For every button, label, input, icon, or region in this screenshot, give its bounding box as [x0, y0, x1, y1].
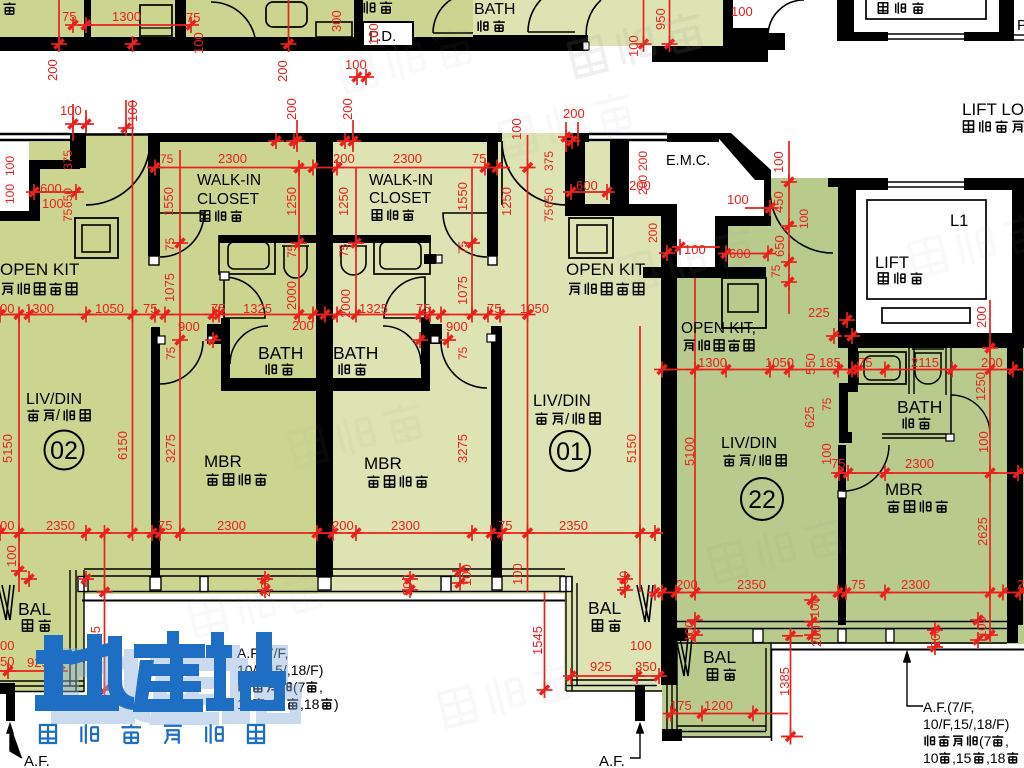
svg-text:200: 200	[292, 318, 314, 333]
svg-text:200: 200	[646, 223, 660, 243]
svg-text:3275: 3275	[163, 434, 178, 463]
svg-text:5100: 5100	[682, 437, 697, 466]
svg-text:75: 75	[164, 346, 178, 360]
svg-text:02: 02	[50, 437, 78, 465]
svg-text:10/F,15/,18/F): 10/F,15/,18/F)	[923, 716, 1009, 732]
svg-text:75: 75	[143, 301, 157, 316]
svg-text:350: 350	[635, 659, 657, 674]
svg-text:75: 75	[285, 244, 299, 258]
svg-text:MBR: MBR	[885, 480, 923, 499]
svg-text:2300: 2300	[218, 151, 247, 166]
svg-text:5150: 5150	[624, 434, 639, 463]
svg-text:1050: 1050	[765, 355, 794, 370]
svg-text:75: 75	[487, 301, 501, 316]
svg-text:75: 75	[211, 301, 225, 316]
svg-text:22: 22	[748, 486, 776, 514]
svg-text:5150: 5150	[0, 434, 15, 463]
svg-text:100: 100	[771, 151, 786, 173]
svg-text:200: 200	[928, 626, 943, 648]
svg-text:100: 100	[510, 563, 525, 585]
svg-text:75: 75	[62, 9, 76, 24]
svg-text:1325: 1325	[359, 301, 388, 316]
svg-text:00: 00	[0, 638, 14, 653]
svg-text:650: 650	[772, 235, 787, 257]
svg-text:75: 75	[456, 346, 470, 360]
svg-text:185: 185	[819, 355, 841, 370]
svg-text:600: 600	[576, 178, 598, 193]
svg-text:650: 650	[61, 188, 75, 208]
svg-text:75: 75	[820, 397, 834, 411]
svg-text:BAL: BAL	[18, 599, 51, 619]
svg-text:,: ,	[319, 679, 323, 695]
svg-text:MBR: MBR	[204, 452, 242, 471]
svg-text:75: 75	[498, 518, 512, 533]
svg-text:100: 100	[191, 32, 206, 54]
svg-text:375: 375	[61, 150, 75, 170]
svg-text:75: 75	[858, 355, 872, 370]
svg-text:2300: 2300	[217, 518, 246, 533]
svg-text:LIV/DIN: LIV/DIN	[26, 391, 82, 408]
svg-text:00: 00	[0, 518, 14, 533]
svg-text:650: 650	[542, 188, 556, 208]
svg-text:BATH: BATH	[258, 343, 303, 363]
svg-text:1300: 1300	[698, 355, 727, 370]
svg-text:1075: 1075	[162, 273, 177, 302]
svg-text:2350: 2350	[737, 577, 766, 592]
svg-text:200: 200	[636, 151, 650, 171]
svg-text:BATH: BATH	[333, 343, 378, 363]
svg-text:OPEN KIT,: OPEN KIT,	[681, 320, 756, 337]
svg-text:00: 00	[0, 301, 14, 316]
svg-text:100: 100	[366, 23, 381, 45]
svg-text:100: 100	[4, 545, 19, 567]
svg-text:2350: 2350	[559, 518, 588, 533]
svg-text:CLOSET: CLOSET	[197, 191, 260, 208]
svg-text:2000: 2000	[338, 289, 353, 318]
svg-text:100: 100	[727, 192, 749, 207]
svg-text:,18: ,18	[986, 750, 1006, 766]
svg-text:1075: 1075	[455, 276, 470, 305]
svg-text:100: 100	[797, 209, 811, 229]
svg-text:L1: L1	[950, 212, 968, 230]
svg-text:1250: 1250	[284, 187, 299, 216]
svg-text:200: 200	[275, 60, 290, 82]
svg-text:1325: 1325	[243, 301, 272, 316]
svg-text:200: 200	[45, 59, 60, 81]
svg-text:2300: 2300	[391, 518, 420, 533]
svg-text:E.M.C.: E.M.C.	[666, 153, 710, 169]
svg-text:75: 75	[472, 151, 486, 166]
svg-text:1300: 1300	[25, 301, 54, 316]
svg-text:1250: 1250	[499, 187, 514, 216]
svg-text:2625: 2625	[975, 517, 990, 546]
svg-text:200: 200	[400, 574, 415, 596]
svg-text:200: 200	[332, 518, 354, 533]
svg-text:BAL: BAL	[703, 647, 736, 667]
svg-text:2300: 2300	[901, 577, 930, 592]
svg-text:1050: 1050	[520, 301, 549, 316]
svg-text:1545: 1545	[530, 626, 545, 655]
svg-text:75: 75	[456, 240, 470, 254]
svg-text:CLOSET: CLOSET	[369, 190, 432, 207]
svg-text:200: 200	[809, 625, 824, 647]
svg-text:300: 300	[329, 10, 344, 32]
svg-text:A.F.: A.F.	[599, 753, 625, 768]
svg-text:200: 200	[333, 151, 355, 166]
svg-text:1250: 1250	[336, 187, 351, 216]
svg-text:LIV/DIN: LIV/DIN	[533, 392, 591, 410]
svg-text:10: 10	[923, 750, 939, 766]
svg-text:100: 100	[807, 596, 822, 618]
svg-text:200: 200	[676, 577, 698, 592]
svg-text:1050: 1050	[95, 301, 124, 316]
svg-text:,: ,	[1005, 733, 1009, 749]
svg-text:1300: 1300	[112, 9, 141, 24]
svg-text:625: 625	[802, 406, 817, 428]
svg-text:BATH: BATH	[897, 397, 942, 417]
svg-text:LIV/DIN: LIV/DIN	[721, 435, 777, 452]
svg-text:600: 600	[40, 181, 62, 196]
svg-text:75: 75	[160, 152, 174, 166]
svg-text:2000: 2000	[284, 281, 299, 310]
svg-text:200: 200	[981, 355, 1003, 370]
svg-text:75: 75	[163, 237, 177, 251]
svg-text:100: 100	[731, 4, 753, 19]
svg-text:): )	[334, 696, 339, 712]
svg-text:950: 950	[653, 8, 668, 30]
svg-text:900: 900	[446, 319, 468, 334]
svg-text:2350: 2350	[46, 518, 75, 533]
svg-text:75: 75	[61, 208, 75, 222]
svg-text:100: 100	[617, 571, 631, 591]
svg-text:100: 100	[459, 564, 474, 586]
svg-text:100: 100	[125, 100, 140, 122]
svg-text:2300: 2300	[393, 151, 422, 166]
svg-text:75: 75	[769, 264, 783, 278]
svg-text:375: 375	[542, 151, 556, 171]
svg-text:200: 200	[974, 306, 989, 328]
svg-text:2115: 2115	[911, 355, 939, 370]
svg-text:50: 50	[0, 654, 14, 669]
svg-text:WALK-IN: WALK-IN	[197, 172, 261, 189]
svg-text:A.F.(7/F,: A.F.(7/F,	[923, 699, 974, 715]
svg-text:100: 100	[3, 184, 17, 204]
svg-text:100: 100	[630, 638, 652, 653]
svg-text:100: 100	[3, 156, 17, 176]
svg-text:75: 75	[186, 10, 200, 25]
svg-text:75: 75	[542, 208, 556, 222]
svg-text:75: 75	[416, 301, 430, 316]
svg-text:100: 100	[974, 616, 989, 638]
svg-text:175: 175	[670, 698, 692, 713]
svg-text:900: 900	[178, 319, 200, 334]
svg-text:75: 75	[851, 577, 865, 592]
svg-text:,18: ,18	[300, 696, 320, 712]
svg-text:OPEN KIT: OPEN KIT	[0, 260, 79, 279]
svg-text:P: P	[1017, 17, 1024, 34]
svg-text:LIFT: LIFT	[875, 254, 909, 272]
svg-text:200: 200	[284, 98, 299, 120]
svg-text:1250: 1250	[973, 372, 988, 401]
svg-text:2: 2	[1017, 577, 1024, 592]
svg-text:100: 100	[819, 443, 834, 465]
svg-text:925: 925	[590, 659, 612, 674]
svg-text:1200: 1200	[704, 698, 733, 713]
svg-text:01: 01	[556, 438, 584, 466]
svg-text:6150: 6150	[115, 431, 130, 460]
svg-text:75: 75	[158, 518, 172, 533]
svg-text:3275: 3275	[455, 434, 470, 463]
svg-text:MBR: MBR	[364, 454, 402, 473]
svg-text:,15: ,15	[952, 750, 972, 766]
svg-text:75: 75	[337, 243, 351, 257]
svg-text:1550: 1550	[161, 187, 176, 216]
svg-text:A.F.: A.F.	[24, 753, 50, 768]
svg-text:WALK-IN: WALK-IN	[369, 172, 433, 189]
svg-text:1385: 1385	[777, 667, 792, 696]
svg-text:200: 200	[636, 175, 650, 195]
svg-text:(7: (7	[979, 733, 992, 749]
svg-text:BAL: BAL	[588, 598, 621, 618]
svg-text:550: 550	[803, 353, 818, 375]
svg-text:100: 100	[682, 620, 697, 642]
svg-text:225: 225	[808, 305, 830, 320]
svg-text:100: 100	[976, 431, 991, 453]
svg-text:200: 200	[340, 98, 355, 120]
svg-text:100: 100	[60, 103, 82, 118]
svg-text:450: 450	[771, 191, 786, 213]
svg-text:BATH: BATH	[474, 1, 515, 18]
svg-text:1550: 1550	[455, 182, 470, 211]
svg-text:LIFT LO: LIFT LO	[962, 100, 1024, 119]
svg-text:2300: 2300	[905, 456, 934, 471]
